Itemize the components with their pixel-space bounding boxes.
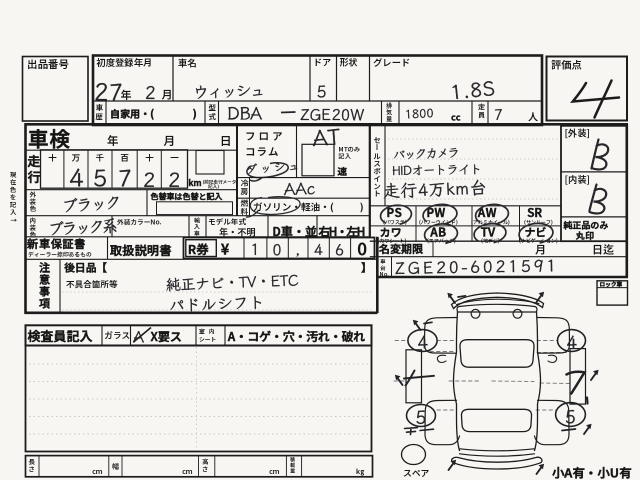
svg-text:1.8S: 1.8S <box>449 72 497 106</box>
svg-text:員: 員 <box>478 111 485 121</box>
svg-text:A: A <box>132 324 145 348</box>
svg-text:車検: 車検 <box>28 123 71 153</box>
svg-text:[外装]: [外装] <box>565 126 591 140</box>
svg-text:A・コゲ・穴・汚れ・破れ: A・コゲ・穴・汚れ・破れ <box>228 328 365 345</box>
svg-text:月: 月 <box>162 87 173 103</box>
svg-text:日迄: 日迄 <box>592 242 614 258</box>
svg-text:2: 2 <box>143 164 155 193</box>
svg-text:5: 5 <box>93 158 107 193</box>
svg-text:パドルシフト: パドルシフト <box>168 289 265 316</box>
svg-text:0: 0 <box>272 239 281 260</box>
svg-text:速: 速 <box>338 164 348 178</box>
svg-text:ロック車: ロック車 <box>600 279 623 288</box>
svg-text:フロア: フロア <box>245 129 286 144</box>
svg-text:cm: cm <box>92 467 102 477</box>
svg-text:一: 一 <box>170 152 179 164</box>
svg-text:十: 十 <box>48 152 57 164</box>
svg-text:4: 4 <box>566 329 577 355</box>
svg-text:ガラス: ガラス <box>105 330 131 342</box>
svg-text:cm: cm <box>182 467 192 477</box>
svg-text:初度登録年月: 初度登録年月 <box>97 55 153 69</box>
svg-text:走行4万km台: 走行4万km台 <box>382 173 487 202</box>
svg-text:料: 料 <box>240 207 249 218</box>
svg-text:行: 行 <box>28 167 41 186</box>
svg-text:→: → <box>11 215 18 225</box>
svg-text:さ: さ <box>202 464 209 474</box>
svg-text:cm: cm <box>269 467 279 477</box>
svg-text:1: 1 <box>250 236 260 260</box>
svg-text:DBA: DBA <box>227 100 262 125</box>
svg-text:ZGE20-6021591: ZGE20-6021591 <box>395 252 560 279</box>
svg-text:小A有・小U有: 小A有・小U有 <box>552 463 632 480</box>
svg-text:4: 4 <box>68 158 83 194</box>
svg-text:幅: 幅 <box>112 462 119 472</box>
svg-text:¥: ¥ <box>221 239 229 260</box>
svg-text:6: 6 <box>335 239 344 260</box>
svg-text:色: 色 <box>30 203 37 213</box>
svg-text:年: 年 <box>121 87 132 103</box>
svg-text:量: 量 <box>386 114 393 123</box>
svg-text:評価点: 評価点 <box>551 57 583 72</box>
svg-text:後日品【: 後日品【 <box>64 260 107 276</box>
svg-text:歴: 歴 <box>96 112 104 123</box>
svg-text:km: km <box>189 176 203 189</box>
svg-text:記入): 記入) <box>208 183 219 190</box>
svg-text:日: 日 <box>220 133 232 149</box>
svg-text:): ) <box>193 106 197 121</box>
svg-text:cc: cc <box>451 111 461 124</box>
svg-text:AT: AT <box>310 119 341 153</box>
svg-text:色替車は色替と記入: 色替車は色替と記入 <box>150 192 223 203</box>
svg-text:人: 人 <box>527 109 538 124</box>
svg-text:ト: ト <box>374 190 381 200</box>
svg-text:5: 5 <box>317 78 327 102</box>
svg-text:X要ス: X要ス <box>151 328 182 345</box>
svg-text:さ: さ <box>29 464 36 474</box>
svg-text:自家用・(: 自家用・( <box>110 106 154 121</box>
svg-text:No.: No. <box>380 270 390 278</box>
svg-text:2: 2 <box>168 164 180 193</box>
svg-text:0: 0 <box>357 237 367 262</box>
svg-text:7: 7 <box>494 104 503 125</box>
svg-text:スペア: スペア <box>403 467 430 480</box>
svg-text:グレード: グレード <box>373 55 410 69</box>
svg-text:出品番号: 出品番号 <box>27 57 69 72</box>
svg-text:シート: シート <box>199 335 217 344</box>
svg-text:R券: R券 <box>188 239 209 258</box>
svg-text:年: 年 <box>107 133 119 149</box>
svg-text:): ) <box>360 200 364 214</box>
svg-text:車名: 車名 <box>178 56 197 70</box>
svg-text:記入: 記入 <box>339 152 352 161</box>
svg-text:4: 4 <box>417 329 428 355</box>
svg-text:月: 月 <box>164 133 176 149</box>
svg-text:1800: 1800 <box>404 104 434 122</box>
svg-text:,: , <box>295 239 300 260</box>
svg-text:房: 房 <box>240 187 249 198</box>
svg-text:形状: 形状 <box>339 56 358 69</box>
svg-text:AAc: AAc <box>282 175 315 200</box>
svg-text:十: 十 <box>145 152 154 164</box>
svg-text:取扱説明書: 取扱説明書 <box>110 241 172 259</box>
svg-text:ドア: ドア <box>313 56 331 69</box>
svg-text:5: 5 <box>416 404 427 430</box>
svg-text:】: 】 <box>361 260 372 276</box>
svg-text:kg: kg <box>356 467 365 477</box>
svg-text:4: 4 <box>313 239 322 260</box>
svg-text:コラム: コラム <box>245 145 280 160</box>
svg-text:ー: ー <box>371 144 381 151</box>
svg-text:式: 式 <box>209 112 217 123</box>
svg-text:2: 2 <box>145 79 156 105</box>
svg-text:項: 項 <box>39 296 51 312</box>
svg-text:不具合箇所等: 不具合箇所等 <box>66 279 118 291</box>
svg-text:7: 7 <box>117 158 131 193</box>
svg-text:量: 量 <box>290 468 296 475</box>
svg-text:丸印: 丸印 <box>576 229 594 242</box>
svg-text:外装カラーNo.: 外装カラーNo. <box>117 217 162 227</box>
svg-text:[内装]: [内装] <box>565 172 591 186</box>
svg-text:検査員記入: 検査員記入 <box>28 326 93 345</box>
svg-text:ディーラー捺印あるもの: ディーラー捺印あるもの <box>28 250 92 259</box>
svg-text:5: 5 <box>565 403 576 429</box>
